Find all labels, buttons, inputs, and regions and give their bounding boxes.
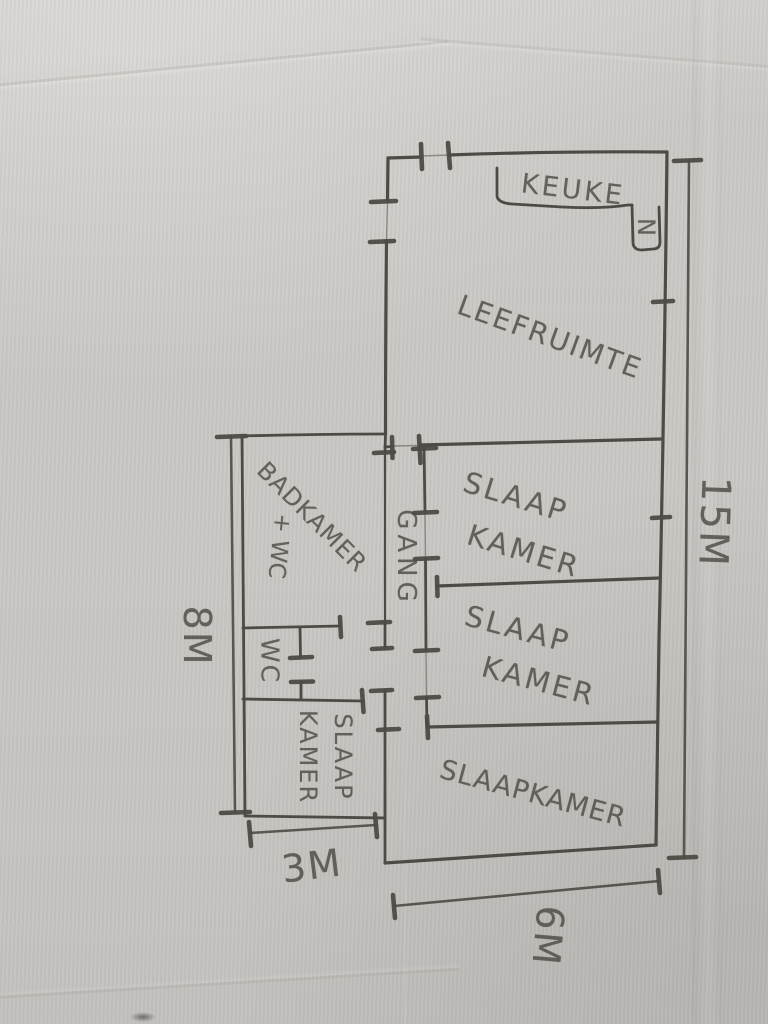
dimension-label-6m: 6M (523, 904, 572, 969)
floor-plan-photo: KEUKE N LEEFRUIMTE SLAAP KAMER SLAAP KAM… (0, 0, 768, 1024)
room-label-wc: WC (256, 638, 285, 684)
dimension-label-15m: 15M (689, 476, 738, 569)
door-opening-ticks (368, 143, 673, 691)
room-label-keuken-n: N (632, 218, 660, 236)
dimension-label-3m: 3M (279, 840, 345, 891)
room-label-slaapkamer-annex-line2: KAMER (290, 710, 325, 804)
room-label-slaapkamer-annex: SLAAP KAMER (290, 710, 360, 804)
room-label-gang: GANG (391, 509, 421, 607)
dimension-label-8m: 8M (175, 606, 219, 667)
room-label-slaapkamer-annex-line1: SLAAP (325, 710, 360, 804)
dimension-line-6m (393, 870, 660, 918)
floor-plan-drawing (0, 0, 768, 1024)
